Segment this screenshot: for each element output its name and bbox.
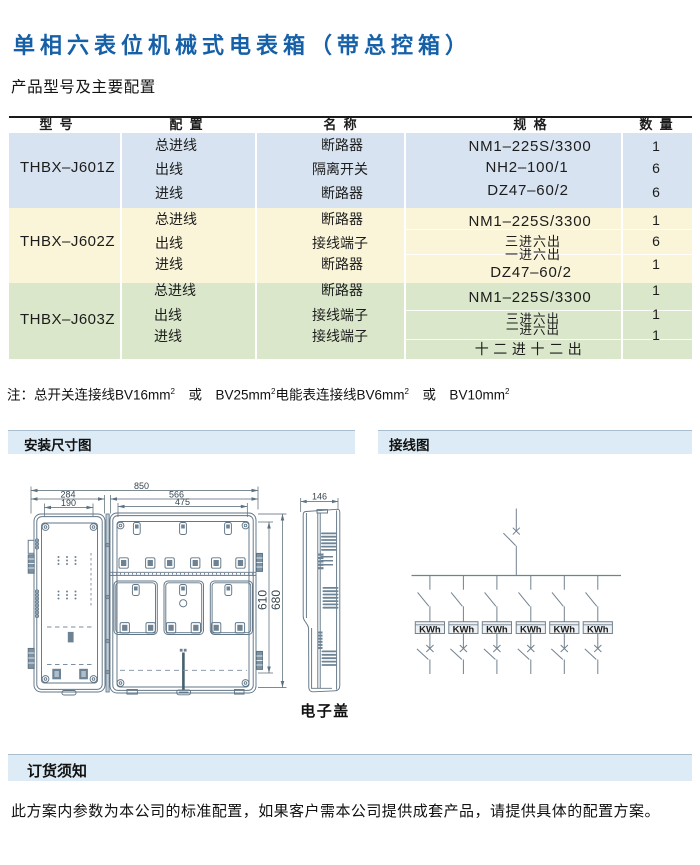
svg-text:610: 610 bbox=[256, 590, 270, 610]
svg-text:146: 146 bbox=[312, 492, 327, 502]
svg-text:190: 190 bbox=[61, 498, 76, 508]
svg-text:680: 680 bbox=[269, 590, 283, 610]
svg-text:475: 475 bbox=[175, 497, 190, 507]
svg-text:850: 850 bbox=[134, 481, 149, 491]
